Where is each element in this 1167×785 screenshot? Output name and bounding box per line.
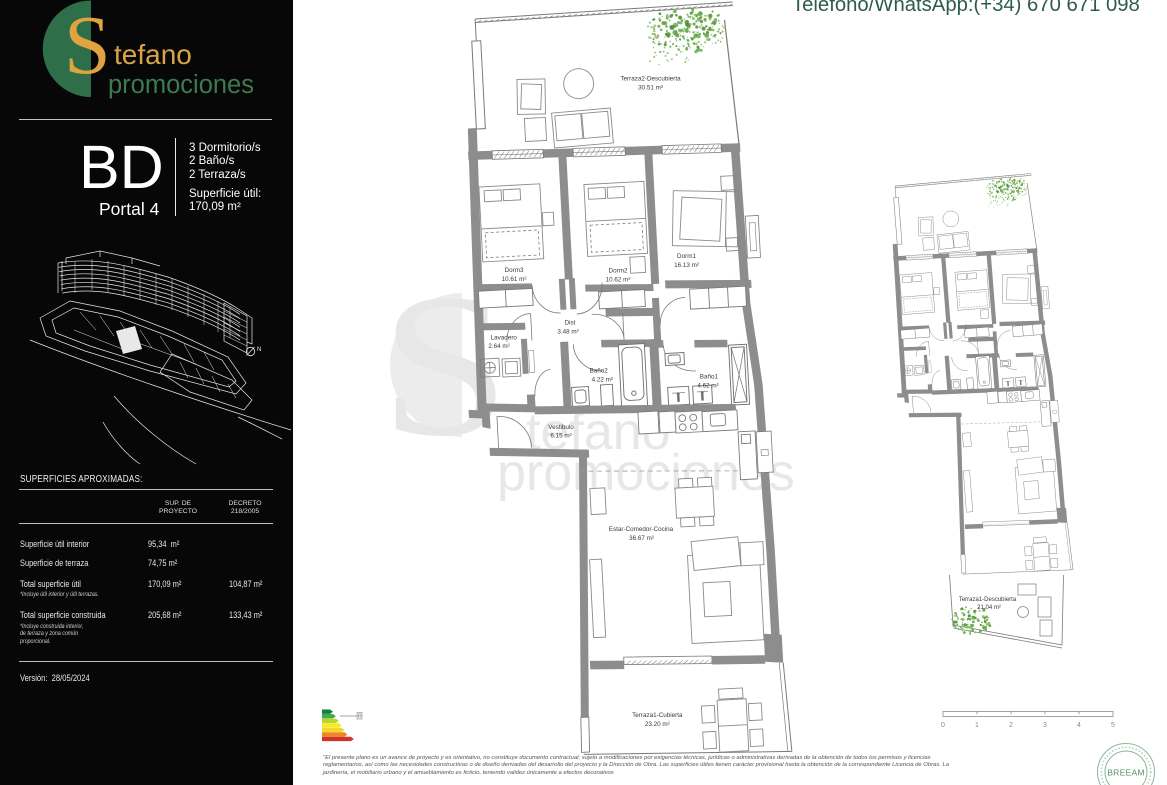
- svg-text:Dorm3: Dorm3: [505, 267, 524, 274]
- svg-text:Dist: Dist: [565, 320, 576, 327]
- svg-text:Dorm2: Dorm2: [609, 268, 628, 275]
- svg-text:4.62 m²: 4.62 m²: [697, 383, 718, 390]
- svg-text:Baño1: Baño1: [700, 374, 719, 381]
- svg-text:4: 4: [1077, 722, 1081, 729]
- svg-text:4.22 m²: 4.22 m²: [592, 377, 613, 384]
- svg-text:3.48 m²: 3.48 m²: [557, 329, 578, 336]
- svg-text:30.51 m²: 30.51 m²: [638, 85, 663, 92]
- svg-text:Terraza1-Descubierta: Terraza1-Descubierta: [959, 597, 1017, 603]
- svg-text:Terraza2-Descubierta: Terraza2-Descubierta: [620, 76, 681, 83]
- svg-text:16.13 m²: 16.13 m²: [674, 262, 699, 269]
- svg-text:Terraza1-Cubierta: Terraza1-Cubierta: [632, 712, 683, 719]
- svg-text:Baño2: Baño2: [590, 368, 609, 375]
- svg-text:21.04 m²: 21.04 m²: [977, 605, 1001, 611]
- svg-text:0: 0: [941, 722, 945, 729]
- svg-text:5: 5: [1111, 722, 1115, 729]
- svg-text:10.61 m²: 10.61 m²: [502, 276, 527, 283]
- svg-text:Lavadero: Lavadero: [491, 335, 518, 342]
- svg-text:36.67 m²: 36.67 m²: [629, 535, 654, 542]
- svg-text:Dorm1: Dorm1: [677, 253, 696, 260]
- svg-text:B: B: [358, 714, 362, 720]
- svg-text:2.64 m²: 2.64 m²: [488, 343, 509, 350]
- svg-text:1: 1: [975, 722, 979, 729]
- svg-text:23.20 m²: 23.20 m²: [645, 721, 670, 728]
- svg-text:10.62 m²: 10.62 m²: [606, 277, 631, 284]
- svg-text:2: 2: [1009, 722, 1013, 729]
- svg-text:Estar-Comedor-Cocina: Estar-Comedor-Cocina: [609, 526, 674, 533]
- svg-text:6.15 m²: 6.15 m²: [550, 433, 571, 440]
- svg-text:3: 3: [1043, 722, 1047, 729]
- svg-text:Vestibulo: Vestibulo: [548, 424, 574, 431]
